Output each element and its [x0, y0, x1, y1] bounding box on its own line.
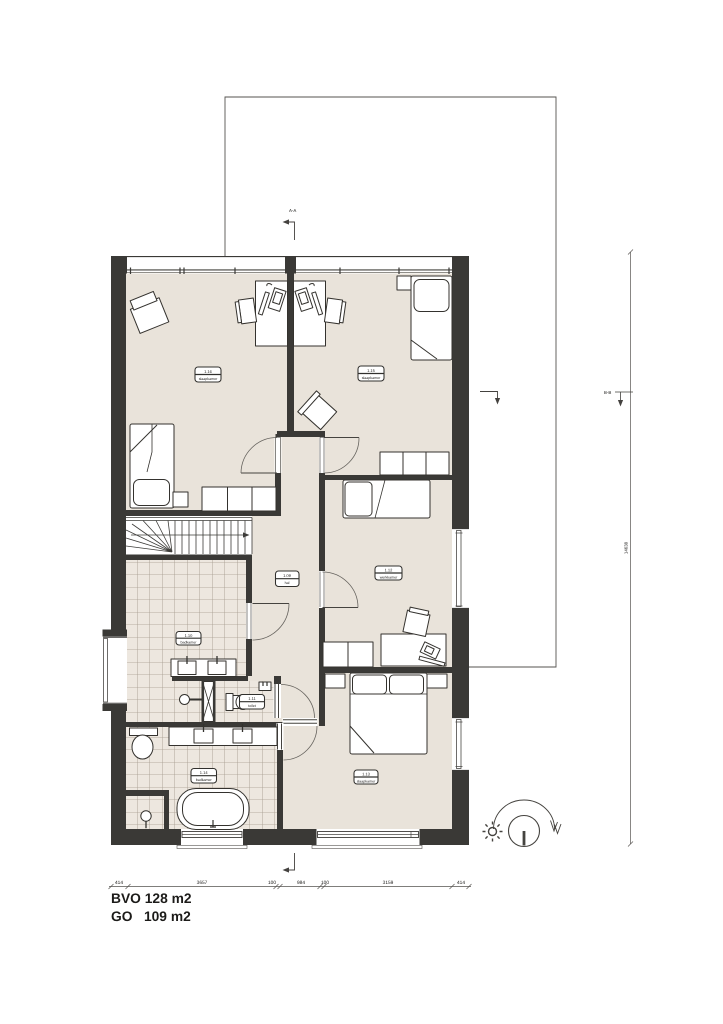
svg-text:toilet: toilet	[248, 704, 256, 708]
svg-text:hal: hal	[285, 581, 290, 585]
svg-text:badkamer: badkamer	[196, 778, 213, 782]
svg-text:werkkamer: werkkamer	[380, 575, 398, 579]
svg-text:100: 100	[321, 880, 329, 886]
svg-text:1.11: 1.11	[248, 696, 256, 701]
svg-text:984: 984	[297, 880, 305, 886]
svg-text:BVO 128 m2: BVO 128 m2	[111, 891, 192, 906]
svg-text:3657: 3657	[197, 880, 208, 886]
svg-text:slaapkamer: slaapkamer	[199, 377, 218, 381]
svg-text:1.09: 1.09	[283, 573, 292, 578]
svg-text:badkamer: badkamer	[181, 640, 198, 644]
svg-text:slaapkamer: slaapkamer	[357, 779, 376, 783]
svg-text:A-A: A-A	[289, 208, 296, 213]
svg-text:414: 414	[457, 880, 465, 886]
svg-text:1.10: 1.10	[185, 633, 194, 638]
svg-text:1.16: 1.16	[204, 369, 213, 374]
svg-text:414: 414	[115, 880, 123, 886]
svg-text:1.15: 1.15	[367, 368, 376, 373]
svg-text:GO 109 m2: GO 109 m2	[111, 909, 191, 924]
svg-text:14638: 14638	[624, 541, 629, 554]
svg-text:1.12: 1.12	[385, 568, 394, 573]
svg-text:1.14: 1.14	[200, 770, 209, 775]
svg-text:100: 100	[268, 880, 276, 886]
svg-text:1.13: 1.13	[362, 772, 371, 777]
svg-text:B-B: B-B	[604, 390, 611, 395]
svg-text:3159: 3159	[383, 880, 394, 886]
svg-text:slaapkamer: slaapkamer	[362, 376, 381, 380]
